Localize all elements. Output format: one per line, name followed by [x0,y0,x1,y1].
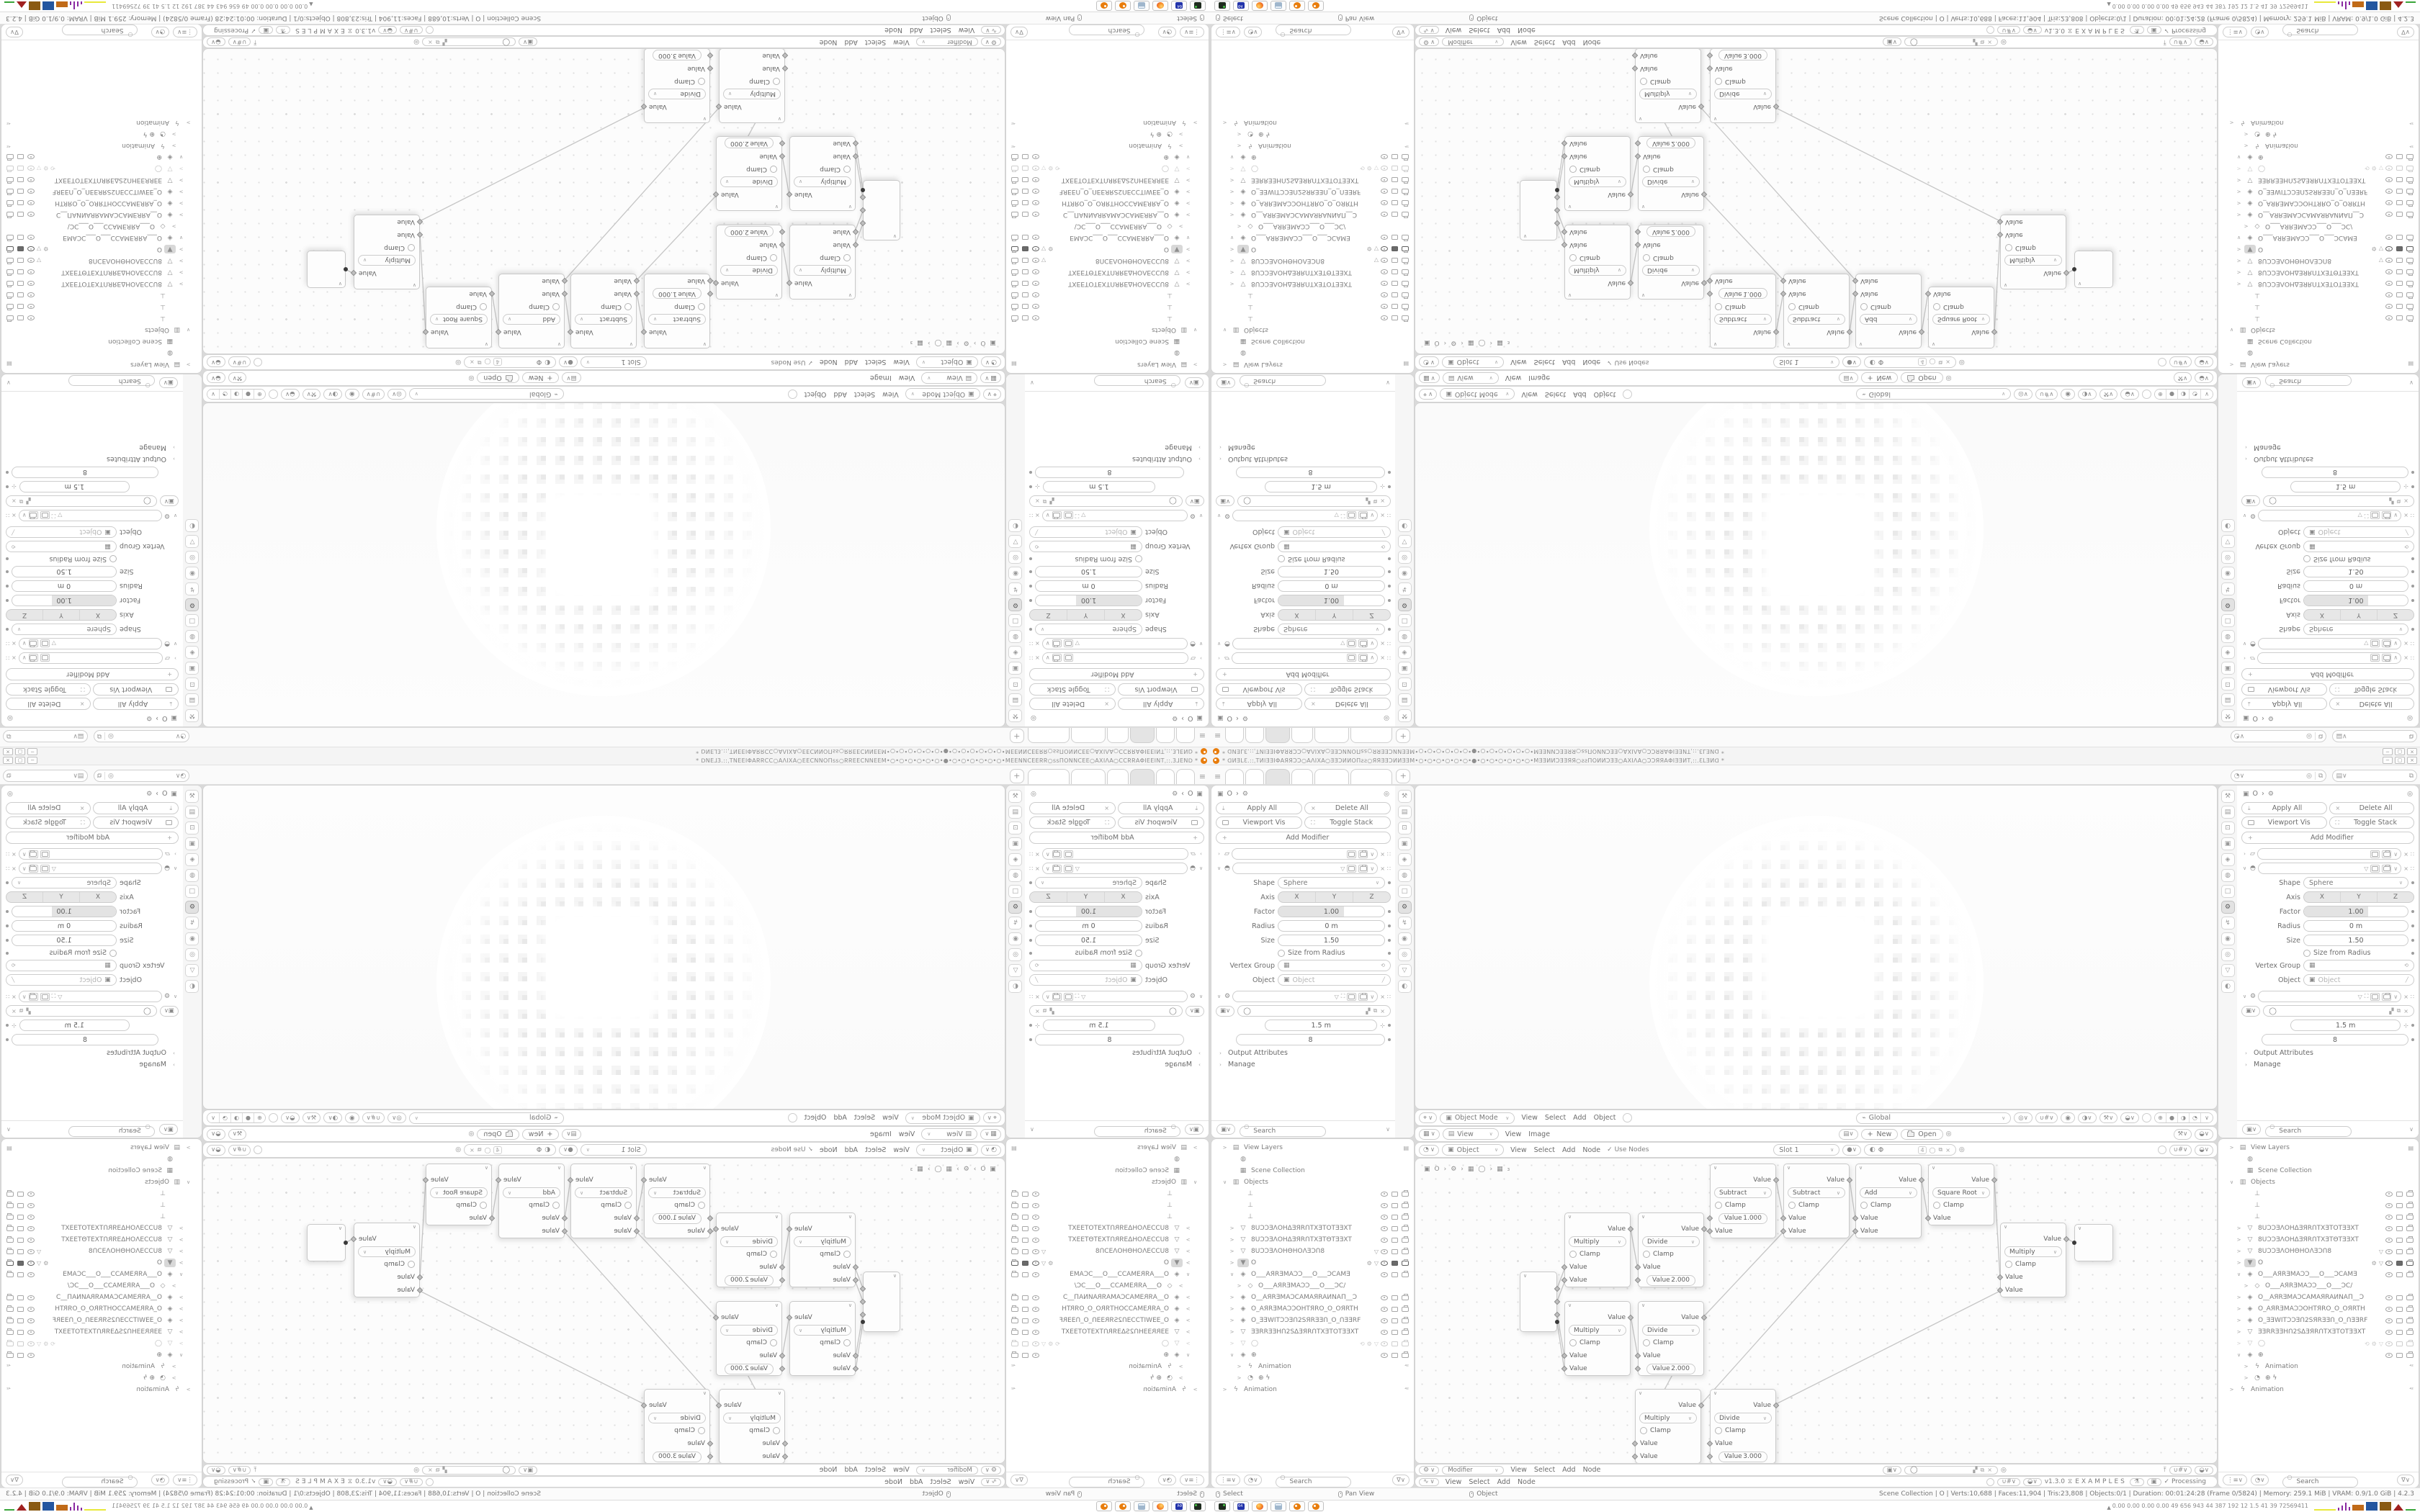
render-disable-toggle[interactable] [1011,305,1018,310]
radius-field[interactable]: 0 m [1035,580,1142,592]
hide-eye-toggle[interactable] [1032,1318,1039,1323]
input-socket[interactable] [853,1353,859,1359]
outliner-row[interactable]: >▽8UƆƆƎΛOHΔƎЯRՈTXƎTOTƎƎXT [4,278,199,289]
snap-magnet-button[interactable]: ∪#∨ [362,389,385,400]
editor-type-button[interactable]: ∿∨ [1419,27,1439,35]
experimental-button[interactable]: ⚗ [2130,1478,2144,1486]
clamp-checkbox[interactable] [1715,1427,1722,1434]
properties-tab-icon[interactable]: ◉ [1398,567,1412,580]
outliner-row[interactable]: >◔⊕ ϟ [2221,128,2416,140]
outliner-row[interactable]: >◈O_ƎƎWITƆƆƎՈ2SЯRƎƎՈ_O_ՈƎƎRF [4,186,199,197]
outliner-row[interactable]: >ϟAnimation⁴² [1214,1361,1411,1372]
axis-y-button[interactable]: Y [1067,610,1104,620]
math-node[interactable]: ∨ValueMultiply∨ClampValueValue [2000,215,2066,289]
math-node[interactable]: ∨ValueMultiply∨ClampValueValue [1564,136,1631,211]
overlay-toggle-button[interactable]: ◒∨ [2195,1145,2213,1156]
viewport-disable-toggle[interactable] [1391,293,1398,298]
output-socket[interactable] [1919,329,1924,335]
modifier-menu-view[interactable]: View [1507,1466,1531,1474]
properties-tab-icon[interactable]: ◐ [1009,980,1023,993]
viewport-disable-toggle[interactable] [1022,1341,1028,1346]
render-disable-toggle[interactable] [1402,1318,1409,1323]
experimental-button[interactable]: ⚗ [277,27,291,35]
overlay-toggle-button[interactable]: ◒∨ [207,38,225,47]
operation-dropdown[interactable]: Divide∨ [1642,176,1700,187]
close-button[interactable]: × [2407,757,2417,764]
properties-tab-icon[interactable]: ▽ [186,964,200,977]
input-socket[interactable] [779,229,785,235]
copy-icon[interactable]: ⧉ [436,39,440,46]
render-preview-circle-icon[interactable] [2142,1113,2151,1122]
slot-dropdown[interactable]: Slot 1∨ [581,1144,647,1156]
axis-x-button[interactable]: X [1104,892,1142,902]
outliner-row[interactable]: >◈O__AЯRƎMAƆCAMAЯRAИNAΠ__Ɔ [2221,1292,2416,1303]
use-nodes-checkbox[interactable]: ✓ Use Nodes [1607,1146,1649,1153]
outliner-row[interactable]: >▽ƎƎRRƎƎHՈ2SΔƎЯRՈTXƎTOTƎƎXT [1009,1326,1206,1338]
render-disable-toggle[interactable] [1011,166,1018,171]
outliner-row[interactable]: >◈O_AЯRƎMAƆƆOHTЯRO_O_OЯRTH [1214,1303,1411,1315]
pin-icon[interactable]: ◎ [455,1146,461,1153]
outliner-row[interactable]: ∨◈⊕ [1214,1349,1411,1361]
outliner-row[interactable]: ⊥ [1009,1211,1206,1223]
axis-x-button[interactable]: X [1104,610,1142,620]
properties-tab-icon[interactable]: ◉ [2221,932,2235,945]
render-disable-toggle[interactable] [2406,247,2414,252]
expand-arrow-icon[interactable]: > [1222,1387,1228,1392]
outliner-row[interactable]: ⊥ [1214,1188,1411,1200]
node-group-field[interactable]: ◯▞⧉× [2263,1005,2414,1017]
expand-arrow-icon[interactable]: ∨ [1229,1272,1235,1277]
render-disable-toggle[interactable] [2406,293,2414,298]
expand-arrow-icon[interactable]: > [1178,131,1184,137]
node-collapse-chevron[interactable]: ∨ [790,289,855,299]
input-socket[interactable] [417,1274,423,1280]
hide-eye-toggle[interactable] [1032,1226,1039,1231]
render-disable-toggle[interactable] [2406,1226,2414,1231]
operation-dropdown[interactable]: Subtract∨ [1714,1187,1772,1198]
input-socket[interactable] [634,291,640,297]
copy-icon[interactable]: ⧉ [2409,773,2414,780]
math-node[interactable]: ∨ValueAdd∨ClampValueValue [498,1164,565,1238]
output-socket[interactable] [1991,329,1997,335]
outliner-row[interactable]: >▤View Layers▤ [2221,1142,2416,1153]
gizmo-toggle-button[interactable]: ⚒∨ [228,373,247,384]
animate-dot[interactable] [1388,599,1391,602]
remove-modifier-button[interactable]: × [1035,994,1040,1000]
outliner-row[interactable]: ∨◈⊕ [4,151,199,163]
node-group-browse-button[interactable]: ▣∨ [1186,496,1204,507]
expand-arrow-icon[interactable]: > [2243,1375,2249,1381]
gizmo-toggle-button[interactable]: ⚒∨ [2174,373,2192,384]
hide-eye-toggle[interactable] [27,235,35,240]
shape-dropdown[interactable]: Sphere∨ [12,877,117,888]
node-tree-type-dropdown[interactable]: Modifier∨ [916,1466,978,1475]
viewport-disable-toggle[interactable] [1022,258,1028,264]
copy-icon[interactable]: ⧉ [6,733,11,740]
operation-dropdown[interactable]: Subtract∨ [648,1187,706,1198]
outliner-row[interactable]: >◇O___AЯRƎMAƆƆ___O___ƆC/ [1214,220,1411,232]
viewport-disable-toggle[interactable] [17,1249,24,1254]
hide-eye-toggle[interactable] [2385,1272,2393,1277]
tree-browse-button[interactable]: ▣∨ [1883,38,1901,47]
outliner-row[interactable]: ∨◈O___AЯRƎMAƆƆ___O___ƆCAMƎ [1214,1269,1411,1280]
viewport-disable-toggle[interactable] [2396,316,2403,321]
tree-browse-button[interactable]: ▣∨ [1883,1466,1901,1475]
experimental-button[interactable]: ⚗ [277,1478,291,1486]
hide-eye-toggle[interactable] [2385,1215,2393,1220]
render-disable-toggle[interactable] [6,1226,14,1231]
input-socket[interactable] [779,140,785,146]
modifier-menu-select[interactable]: Select [861,1466,889,1474]
workspace-tab[interactable] [1176,728,1195,743]
shader-menu-add[interactable]: Add [1559,1146,1579,1154]
outliner-row[interactable]: >▽8UƆƆƎΛOHΘHOΛƎƆՈ8▽ [4,255,199,266]
outliner-row[interactable]: ⊥ [4,1200,199,1211]
viewport-disable-toggle[interactable] [1022,282,1028,287]
image-menu-image[interactable]: Image [1525,374,1554,382]
shader-menu-view[interactable]: View [889,1146,913,1154]
slot-dropdown[interactable]: Slot 1∨ [1773,1144,1839,1156]
hide-eye-toggle[interactable] [1032,178,1039,183]
expand-arrow-icon[interactable]: > [2243,1283,2249,1289]
viewport-disable-toggle[interactable] [17,1226,24,1231]
expand-arrow-icon[interactable]: ∨ [1229,154,1235,160]
expand-arrow-icon[interactable]: > [2228,361,2235,367]
size-field[interactable]: 1.50 [12,935,117,946]
properties-tab-icon[interactable]: ▤ [1009,693,1023,706]
input-socket[interactable] [1997,232,2003,238]
overlay-toggle-button[interactable]: ◒∨ [2195,1129,2213,1140]
viewport-menu-view[interactable]: View [1518,390,1541,398]
math-node[interactable]: ∨ValueDivide∨ClampValueValue3.000 [1710,1389,1776,1463]
viewport-disable-toggle[interactable] [1391,1203,1398,1208]
input-socket[interactable] [707,1454,713,1459]
node-collapse-chevron[interactable]: ∨ [1636,113,1700,122]
mode-dropdown[interactable]: ▣Object Mode∨ [1440,389,1515,400]
properties-tab-icon[interactable]: ◎ [186,948,200,961]
outliner-row[interactable]: >▽8UƆƆƎΛOHΔƎЯRՈTXƎTOTƎƎXT [1009,278,1206,289]
expand-arrow-icon[interactable]: > [1222,120,1228,125]
hide-eye-toggle[interactable] [1381,155,1388,160]
hide-eye-toggle[interactable] [2385,155,2393,160]
properties-tab-icon[interactable]: ↯ [186,582,200,595]
hide-eye-toggle[interactable] [1032,1261,1039,1266]
outliner-row[interactable]: ▦Scene Collection [1214,1165,1411,1176]
viewport-disable-toggle[interactable] [1391,1261,1398,1266]
node-collapse-chevron[interactable]: ∨ [354,279,419,289]
math-node[interactable]: ∨ValueMultiply∨ClampValueValue [1635,49,1701,123]
expand-arrow-icon[interactable]: > [178,1306,184,1312]
workspace-tab[interactable] [1028,728,1070,743]
expand-arrow-icon[interactable]: > [1185,212,1191,217]
viewport-menu-object[interactable]: Object [800,390,830,398]
fake-user-icon[interactable]: ▞ [1366,498,1370,505]
viewport-vis-button[interactable]: Viewport Vis [1216,816,1302,829]
expand-arrow-icon[interactable]: > [2228,120,2235,125]
viewport-vis-button[interactable]: Viewport Vis [2241,816,2327,829]
material-datablock[interactable]: ◐Φ 4 ◯ ⧉ × [464,1144,556,1156]
expand-arrow-icon[interactable]: > [1229,246,1235,252]
properties-tab-icon[interactable]: ⚒ [186,709,200,722]
blend-taskbar-icon[interactable] [1308,1501,1324,1511]
outliner-row[interactable]: ▦Scene Collection [1214,336,1411,347]
modifier-header-geometry-nodes[interactable]: ∨⚙ ▽⛶∨ ×∷ [1216,510,1391,521]
axis-y-button[interactable]: Y [42,610,79,620]
expand-arrow-icon[interactable]: > [1185,269,1191,275]
axis-segmented-control[interactable]: XYZ [2303,891,2414,903]
manage-section[interactable]: ›Manage [2243,1061,2414,1068]
modifier-header-simple-deform[interactable]: ∨◓ ▽∨ ×∷ [2241,638,2414,649]
render-disable-toggle[interactable] [1011,1203,1018,1208]
expand-arrow-icon[interactable]: > [1185,177,1191,183]
workspace-tab[interactable] [1176,769,1195,784]
size-from-radius-checkbox[interactable] [2303,950,2311,957]
outliner-row[interactable]: ∨▥Objects [2221,324,2416,336]
outliner-row[interactable]: ⊥ [4,289,199,301]
maximize-button[interactable]: ▢ [15,748,25,755]
node-collapse-chevron[interactable]: ∨ [1636,1390,1700,1399]
hide-eye-toggle[interactable] [1381,1215,1388,1220]
properties-tab-icon[interactable]: ◎ [1009,948,1023,961]
outliner-row[interactable]: >◇O___AЯRƎMAƆƆ___O___ƆC/ [1009,1280,1206,1292]
workspace-tab[interactable] [1225,769,1244,784]
outliner-row[interactable]: ▦Scene Collection [2221,336,2416,347]
properties-tab-icon[interactable]: ◐ [186,519,200,532]
input-socket[interactable] [1632,66,1638,71]
material-browse-button[interactable]: ●∨ [1842,1145,1861,1156]
viewport-disable-toggle[interactable] [17,258,24,264]
output-socket[interactable] [1773,329,1779,335]
apply-all-button[interactable]: ⤓Apply All [94,802,179,814]
expand-arrow-icon[interactable]: > [1185,200,1191,206]
hide-eye-toggle[interactable] [1032,1249,1039,1254]
math-node[interactable]: ∨ValueSubtract∨ClampValueValue [570,274,637,348]
input-socket[interactable] [1925,1215,1931,1221]
operation-dropdown[interactable]: Subtract∨ [1788,1187,1845,1198]
render-disable-toggle[interactable] [1011,189,1018,194]
expand-arrow-icon[interactable]: ∨ [1229,235,1235,240]
properties-tab-icon[interactable]: ◍ [2221,869,2235,882]
image-browse-button[interactable]: ▤∨ [1839,373,1857,384]
viewport-disable-toggle[interactable] [17,155,24,160]
snap-magnet-button[interactable]: ∪#∨ [1997,27,2020,35]
input-socket[interactable] [853,229,859,235]
image-browse-button[interactable]: ▤∨ [562,1129,581,1140]
shader-menu-node[interactable]: Node [1579,1146,1604,1154]
shape-dropdown[interactable]: Sphere∨ [2303,877,2408,888]
clamp-checkbox[interactable] [773,1427,780,1434]
operation-dropdown[interactable]: Multiply∨ [358,1246,416,1257]
render-disable-toggle[interactable] [2406,305,2414,310]
animate-dot[interactable] [1388,1024,1391,1027]
node-collapse-chevron[interactable]: ∨ [426,338,491,348]
render-disable-toggle[interactable] [6,1330,14,1335]
animate-dot[interactable] [1029,599,1032,602]
editor-type-button[interactable]: ◔∨ [981,357,1001,368]
gn-value-field-1[interactable]: 1.5 m [1265,481,1377,492]
input-socket[interactable] [634,278,640,284]
remove-modifier-button[interactable]: × [1380,851,1385,858]
viewport-disable-toggle[interactable] [17,282,24,287]
value-field[interactable]: Value3.000 [653,1452,702,1462]
operation-dropdown[interactable]: Divide∨ [720,176,778,187]
output-socket[interactable] [568,1177,573,1183]
add-modifier-button[interactable]: +Add Modifier [1216,668,1391,680]
node-collapse-chevron[interactable]: ∨ [1711,338,1775,348]
overlay-toggle-button[interactable]: ◒∨ [378,1478,397,1486]
snap-target-button[interactable]: ◎∨ [2014,1112,2033,1123]
fake-user-icon[interactable]: ▞ [26,498,30,505]
shader-menu-node[interactable]: Node [816,1146,841,1154]
render-disable-toggle[interactable] [1011,212,1018,217]
snap-magnet-button[interactable]: ∪#∨ [2169,1466,2192,1475]
properties-search-input[interactable] [2265,375,2352,386]
shader-type-dropdown[interactable]: ▣Object∨ [916,356,978,368]
animate-dot[interactable] [2411,485,2414,488]
terminal-button[interactable]: ▣ [2147,1478,2161,1486]
render-disable-toggle[interactable] [1402,293,1409,298]
shader-node-canvas[interactable]: ▣O ›⚙ ›▦◯ ›▦₃ ∨∨ValueMultiply∨ClampValue… [1415,1158,2217,1463]
outliner-row[interactable]: >◈O_AЯRƎMAƆƆOHTЯRO_O_OЯRTH [1009,1303,1206,1315]
node-collapse-chevron[interactable]: ∨ [717,289,781,299]
copy-icon[interactable]: ⧉ [1939,359,1943,366]
properties-search-input[interactable] [68,375,155,386]
copy-icon[interactable]: ⧉ [1373,1007,1378,1014]
expand-arrow-icon[interactable]: ∨ [178,1352,184,1358]
render-disable-toggle[interactable] [6,1272,14,1277]
hide-eye-toggle[interactable] [1032,235,1039,240]
output-socket[interactable] [1628,1315,1633,1320]
remove-modifier-button[interactable]: × [1035,865,1040,872]
output-socket[interactable] [1698,104,1704,109]
expand-arrow-icon[interactable]: > [1192,120,1198,125]
delete-all-button[interactable]: ×Delete All [1304,698,1391,710]
expand-arrow-icon[interactable]: > [2243,1364,2249,1369]
outliner-row[interactable]: >▽8UƆƆƎΛOHΔƎЯRՈTXƎTΘTƎƎXT [1214,266,1411,278]
render-disable-toggle[interactable] [6,1341,14,1346]
viewport-disable-toggle[interactable] [17,247,24,252]
viewport-disable-toggle[interactable] [1391,1238,1398,1243]
expand-arrow-icon[interactable]: > [1229,189,1235,194]
properties-tab-icon[interactable]: ▣ [2221,662,2235,675]
viewport-disable-toggle[interactable] [1391,1192,1398,1197]
math-node[interactable]: ∨ValueMultiply∨ClampValueValue [789,136,856,211]
value-field[interactable]: Value3.000 [1718,1452,1767,1462]
properties-tab-icon[interactable]: ◈ [1009,646,1023,659]
modifier-header-collapsed[interactable]: ›▱ ∨ ×∷ [1216,652,1391,664]
output-socket[interactable] [641,1403,647,1408]
render-disable-toggle[interactable] [1011,258,1018,264]
viewport-disable-toggle[interactable] [17,1353,24,1358]
render-disable-toggle[interactable] [2406,1295,2414,1300]
hide-eye-toggle[interactable] [27,1318,35,1323]
editor-type-button[interactable]: ⚙∨ [1419,1466,1439,1475]
toggle-stack-button[interactable]: ⛶Toggle Stack [1029,816,1116,829]
gizmo-toggle-button[interactable]: ⚒∨ [302,389,321,400]
operation-dropdown[interactable]: Multiply∨ [1639,1413,1697,1423]
expand-arrow-icon[interactable]: > [2236,1295,2242,1300]
options-chevron-icon[interactable]: ∨ [2409,379,2414,386]
node-collapse-chevron[interactable]: ∨ [308,1225,345,1234]
annotate-circle-icon[interactable] [1623,390,1632,399]
output-attributes-section[interactable]: ›Output Attributes [1029,455,1203,463]
expand-arrow-icon[interactable]: > [1222,1145,1228,1151]
output-socket[interactable] [1554,1299,1560,1305]
vertex-group-field[interactable]: ▦⟲ [2303,960,2414,971]
viewport-disable-toggle[interactable] [1391,316,1398,321]
node-collapse-chevron[interactable]: ∨ [1929,1164,1994,1174]
viewport-disable-toggle[interactable] [17,189,24,194]
outliner-row[interactable]: >▽8UƆƆƎΛOHΔƎЯRՈTXƎTOTƎƎXT [1009,1223,1206,1234]
open-image-button[interactable]: Open [477,1129,519,1140]
viewport-disable-toggle[interactable] [17,1272,24,1277]
view-layer-selector[interactable]: ▤∨ ⧉ [2332,770,2417,782]
pin-icon[interactable]: ◎ [413,39,419,46]
modifier-header-geometry-nodes[interactable]: ∨⚙ ▽⛶∨ ×∷ [1216,991,1391,1002]
output-socket[interactable] [351,1236,357,1242]
clamp-checkbox[interactable] [552,303,560,310]
expand-arrow-icon[interactable]: ∨ [2236,154,2242,160]
add-workspace-button[interactable]: + [1010,729,1024,743]
geo-menu-node[interactable]: Node [1514,1478,1539,1486]
clamp-checkbox[interactable] [1715,1202,1722,1209]
hide-eye-toggle[interactable] [1381,1192,1388,1197]
node-collapse-chevron[interactable]: ∨ [1520,1272,1556,1282]
add-modifier-button[interactable]: +Add Modifier [6,668,179,680]
outliner-row[interactable]: >◈O_AЯRƎMAƆƆOHTЯRO_O_OЯRTH [4,197,199,209]
animate-dot[interactable] [1029,952,1032,955]
render-disable-toggle[interactable] [2406,1353,2414,1358]
modifier-header-geometry-nodes[interactable]: ∨⚙ ▽⛶∨ ×∷ [2241,510,2414,521]
viewport-disable-toggle[interactable] [2396,282,2403,287]
viewport-disable-toggle[interactable] [17,212,24,217]
node-group-browse-button[interactable]: ▣∨ [1216,496,1234,507]
copy-icon[interactable]: ⧉ [97,773,102,780]
properties-tab-icon[interactable]: ↯ [1009,582,1023,595]
hide-eye-toggle[interactable] [1381,166,1388,171]
geo-menu-node[interactable]: Node [1514,27,1539,35]
viewport-disable-toggle[interactable] [17,1307,24,1312]
outliner-row[interactable]: ◍ [1214,347,1411,359]
output-socket[interactable] [860,1299,866,1305]
output-socket[interactable] [716,104,722,109]
expand-arrow-icon[interactable]: > [1185,189,1191,194]
output-attributes-section[interactable]: ›Output Attributes [6,1049,177,1057]
axis-z-button[interactable]: Z [1353,610,1390,620]
math-node[interactable]: ∨ValueSquare Root∨ClampValue [1928,1164,1994,1225]
image-menu-view[interactable]: View [1502,1130,1525,1138]
hide-eye-toggle[interactable] [1381,1353,1388,1358]
node-group-browse-button[interactable]: ▣∨ [1216,1006,1234,1017]
viewport-disable-toggle[interactable] [2396,155,2403,160]
expand-arrow-icon[interactable]: > [1185,1318,1191,1323]
view-layer-selector[interactable]: ▤∨ ⧉ [3,770,88,782]
unlink-icon[interactable]: × [12,1008,17,1014]
node-collapsed[interactable]: ∨ [1520,180,1557,240]
editor-type-button[interactable]: ⚙∨ [1419,38,1439,47]
viewport-disable-toggle[interactable] [17,166,24,171]
outliner-row[interactable]: ⊥ [1214,1211,1411,1223]
math-node[interactable]: ∨ValueAdd∨ClampValueValue [1855,274,1922,348]
fake-user-icon[interactable]: ▞ [2389,498,2393,505]
operation-dropdown[interactable]: Divide∨ [1642,1236,1700,1247]
geo-menu-select[interactable]: Select [926,1478,954,1486]
unlink-icon[interactable]: × [1035,1008,1040,1014]
vertex-group-field[interactable]: ▦⟲ [1029,541,1142,552]
axis-z-button[interactable]: Z [2378,892,2414,902]
render-disable-toggle[interactable] [2406,212,2414,217]
input-socket[interactable] [779,1366,785,1372]
